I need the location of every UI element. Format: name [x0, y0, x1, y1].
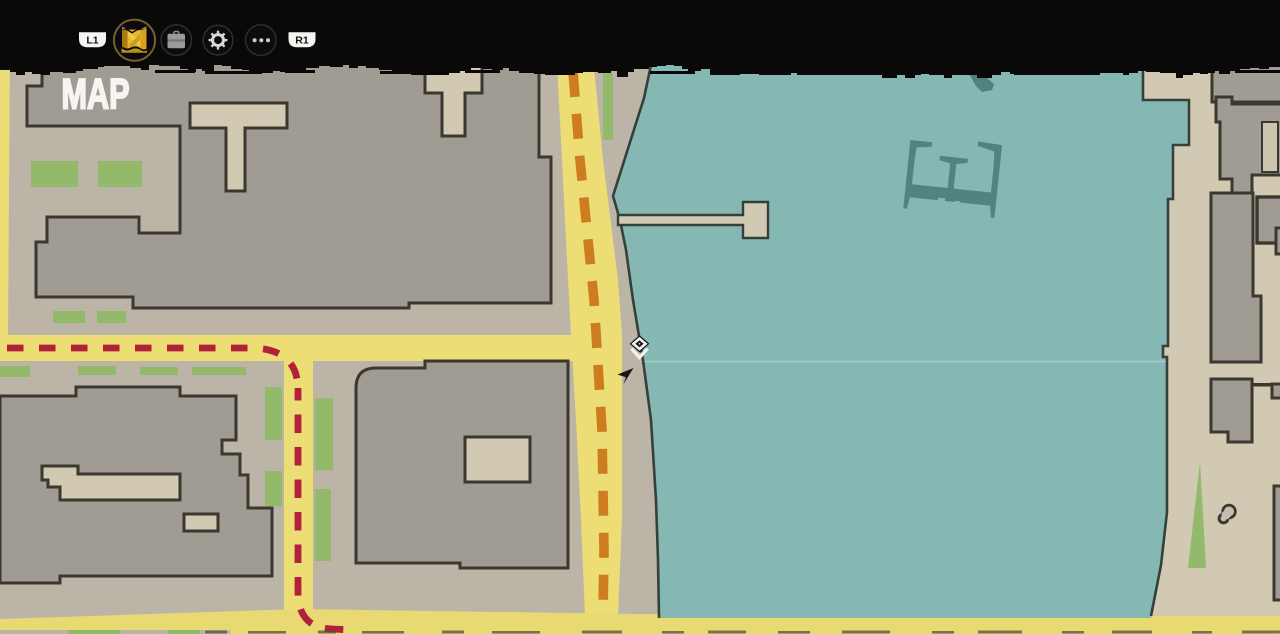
- svg-text:E: E: [871, 124, 1034, 225]
- svg-text:R1: R1: [295, 35, 309, 47]
- svg-text:L1: L1: [86, 35, 98, 47]
- svg-text:MAP: MAP: [62, 71, 130, 119]
